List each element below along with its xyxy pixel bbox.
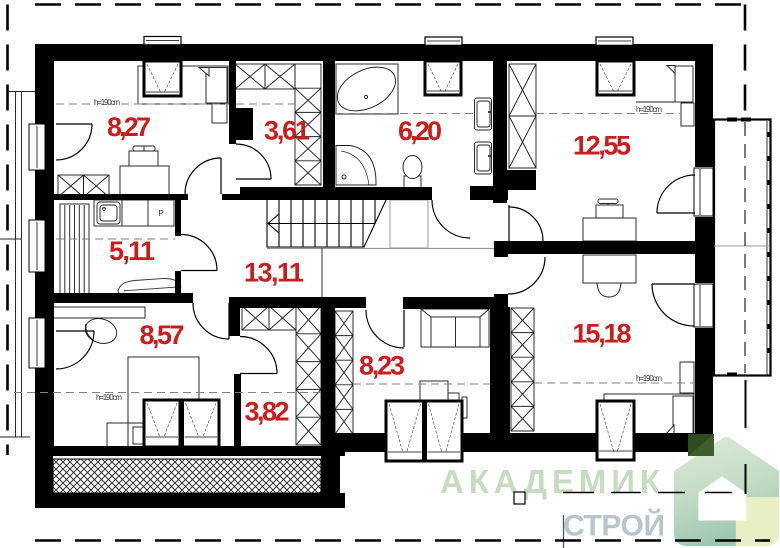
svg-text:3,61: 3,61 [264, 116, 310, 146]
svg-text:12,55: 12,55 [573, 131, 631, 161]
svg-text:15,18: 15,18 [573, 319, 632, 349]
svg-text:8,23: 8,23 [359, 351, 405, 381]
svg-text:8,57: 8,57 [140, 320, 185, 350]
svg-text:h=190cm: h=190cm [94, 98, 120, 107]
svg-text:h=190cm: h=190cm [636, 374, 662, 383]
svg-text:5,11: 5,11 [109, 236, 155, 266]
svg-text:8,27: 8,27 [107, 112, 151, 142]
svg-text:h=190cm: h=190cm [636, 105, 662, 114]
svg-text:3,82: 3,82 [245, 397, 290, 427]
svg-text:6,20: 6,20 [398, 116, 442, 146]
svg-text:СТРОЙ: СТРОЙ [563, 509, 665, 543]
svg-text:13,11: 13,11 [244, 258, 304, 288]
svg-text:h=190cm: h=190cm [96, 393, 122, 402]
svg-text:P: P [158, 209, 163, 218]
